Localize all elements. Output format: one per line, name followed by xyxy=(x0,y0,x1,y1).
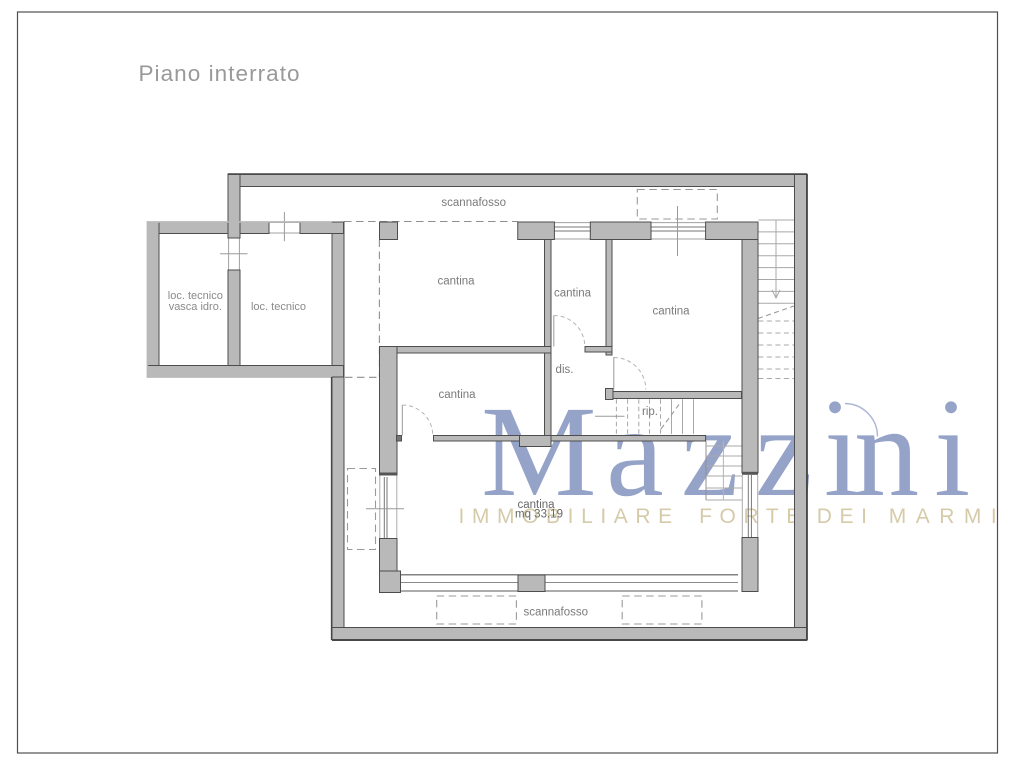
svg-text:rip.: rip. xyxy=(642,406,658,418)
svg-text:Piano interrato: Piano interrato xyxy=(139,61,301,86)
svg-text:scannafosso: scannafosso xyxy=(523,606,588,618)
svg-text:dis.: dis. xyxy=(556,364,574,376)
svg-text:mq 33.19: mq 33.19 xyxy=(515,509,563,521)
svg-text:vasca idro.: vasca idro. xyxy=(169,301,222,313)
svg-text:cantina: cantina xyxy=(652,306,690,318)
svg-text:loc. tecnico: loc. tecnico xyxy=(251,301,306,313)
svg-text:cantina: cantina xyxy=(437,275,475,287)
svg-text:cantina: cantina xyxy=(554,288,592,300)
svg-text:scannafosso: scannafosso xyxy=(441,197,506,209)
svg-text:cantina: cantina xyxy=(438,389,476,401)
